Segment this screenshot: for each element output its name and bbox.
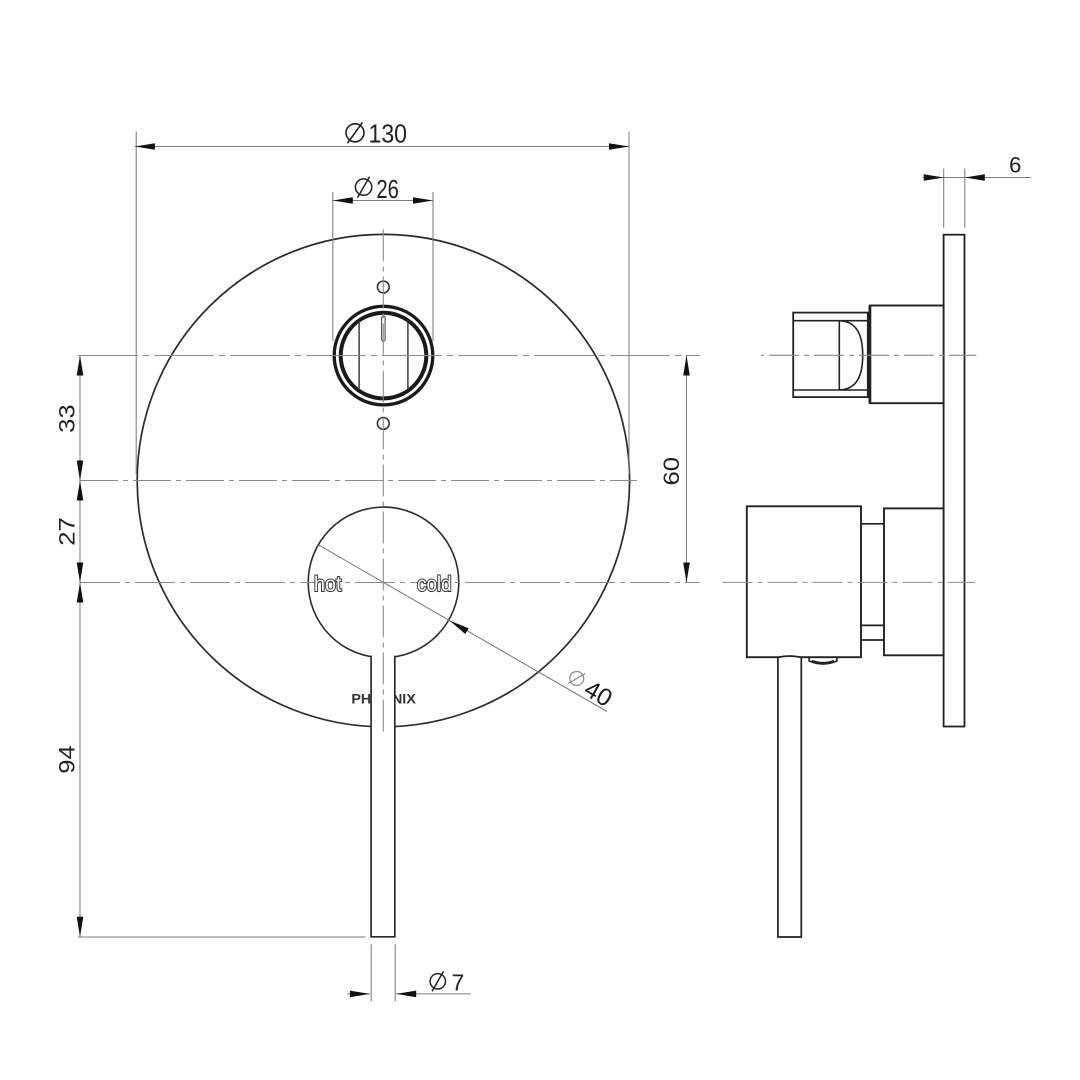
svg-text:94: 94 (54, 745, 79, 774)
svg-text:7: 7 (452, 970, 465, 996)
svg-text:27: 27 (54, 517, 79, 546)
svg-text:hot: hot (314, 572, 342, 596)
svg-text:33: 33 (54, 404, 79, 433)
svg-text:6: 6 (1009, 152, 1021, 177)
svg-text:26: 26 (376, 174, 399, 204)
svg-text:130: 130 (369, 119, 408, 149)
svg-text:cold: cold (417, 572, 452, 596)
svg-text:60: 60 (659, 457, 684, 486)
